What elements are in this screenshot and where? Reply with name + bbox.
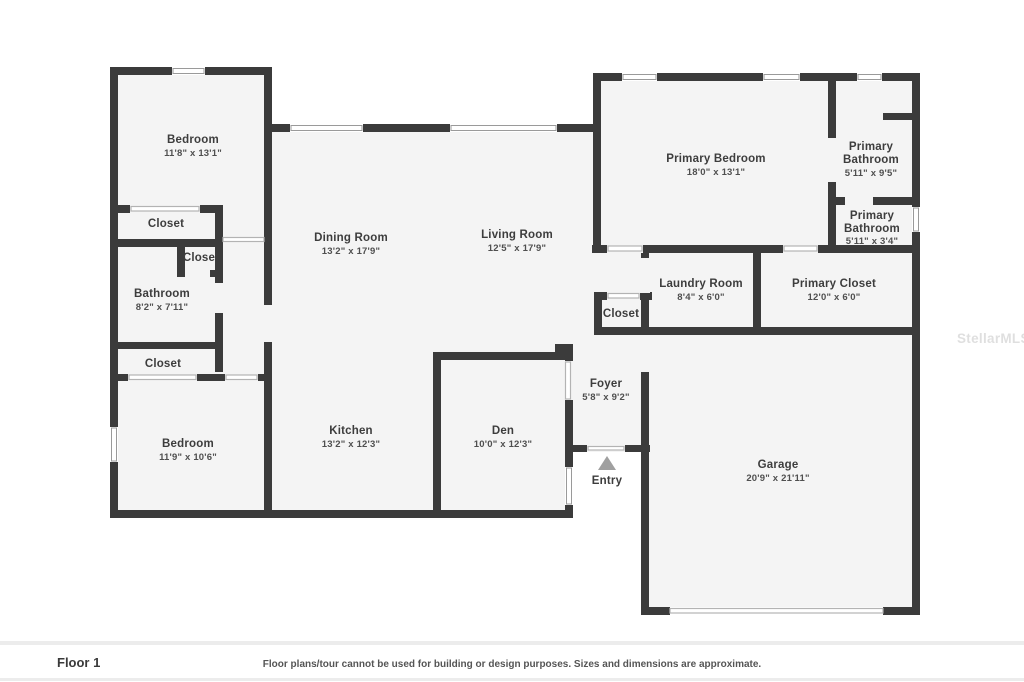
room-dims: 20'9" x 21'11" bbox=[746, 473, 809, 484]
room-name: Closet bbox=[603, 308, 639, 320]
footer-separator-top bbox=[0, 641, 1024, 645]
room-name: Bedroom bbox=[167, 134, 219, 146]
room-name: Closet bbox=[145, 358, 181, 370]
room-name: Entry bbox=[592, 475, 623, 487]
room-name: Primary Closet bbox=[792, 278, 876, 290]
room-name: Primary bbox=[849, 141, 894, 153]
room-label-entry: Entry bbox=[592, 475, 623, 487]
footer-separator-bottom bbox=[0, 678, 1024, 681]
room-name: Bathroom bbox=[134, 288, 190, 300]
room-name: Primary Bedroom bbox=[666, 153, 766, 165]
room-label-primary-bathroom-2: Primary Bathroom 5'11" x 3'4" bbox=[844, 210, 900, 247]
room-name: Den bbox=[492, 425, 514, 437]
room-name: Living Room bbox=[481, 229, 553, 241]
floor-fill bbox=[110, 67, 920, 615]
room-dims: 10'0" x 12'3" bbox=[474, 439, 532, 450]
room-dims: 11'9" x 10'6" bbox=[159, 452, 217, 463]
room-dims: 12'5" x 17'9" bbox=[488, 243, 546, 254]
room-dims: 12'0" x 6'0" bbox=[808, 292, 861, 303]
room-dims: 13'2" x 17'9" bbox=[322, 246, 380, 257]
room-label-closet-1: Closet bbox=[148, 218, 184, 230]
room-name: Laundry Room bbox=[659, 278, 743, 290]
room-name: Closet bbox=[183, 252, 219, 264]
entry-arrow-icon bbox=[598, 456, 616, 470]
disclaimer-text: Floor plans/tour cannot be used for buil… bbox=[0, 659, 1024, 670]
floor-plan-canvas: Bedroom 11'8" x 13'1" Closet Closet Bath… bbox=[0, 0, 1024, 648]
room-name: Garage bbox=[758, 459, 799, 471]
room-dims: 8'2" x 7'11" bbox=[136, 302, 188, 313]
room-name: Bathroom bbox=[844, 223, 900, 235]
room-label-primary-bathroom-1: Primary Bathroom 5'11" x 9'5" bbox=[843, 141, 899, 179]
room-label-closet-3: Closet bbox=[145, 358, 181, 370]
room-name: Bathroom bbox=[843, 154, 899, 166]
floor-plan-page: Bedroom 11'8" x 13'1" Closet Closet Bath… bbox=[0, 0, 1024, 682]
room-dims: 5'11" x 9'5" bbox=[845, 168, 897, 179]
room-dims: 11'8" x 13'1" bbox=[164, 148, 222, 159]
room-dims: 18'0" x 13'1" bbox=[687, 167, 745, 178]
room-label-closet-4: Closet bbox=[603, 308, 639, 320]
room-name: Primary bbox=[850, 210, 895, 222]
room-dims: 13'2" x 12'3" bbox=[322, 439, 380, 450]
room-dims: 5'8" x 9'2" bbox=[582, 392, 629, 403]
room-name: Kitchen bbox=[329, 425, 373, 437]
room-dims: 5'11" x 3'4" bbox=[846, 236, 898, 247]
room-label-closet-2: Closet bbox=[183, 252, 219, 264]
watermark: StellarMLS bbox=[957, 331, 1024, 346]
room-name: Dining Room bbox=[314, 232, 388, 244]
room-name: Closet bbox=[148, 218, 184, 230]
room-dims: 8'4" x 6'0" bbox=[677, 292, 724, 303]
room-name: Foyer bbox=[590, 378, 623, 390]
room-name: Bedroom bbox=[162, 438, 214, 450]
